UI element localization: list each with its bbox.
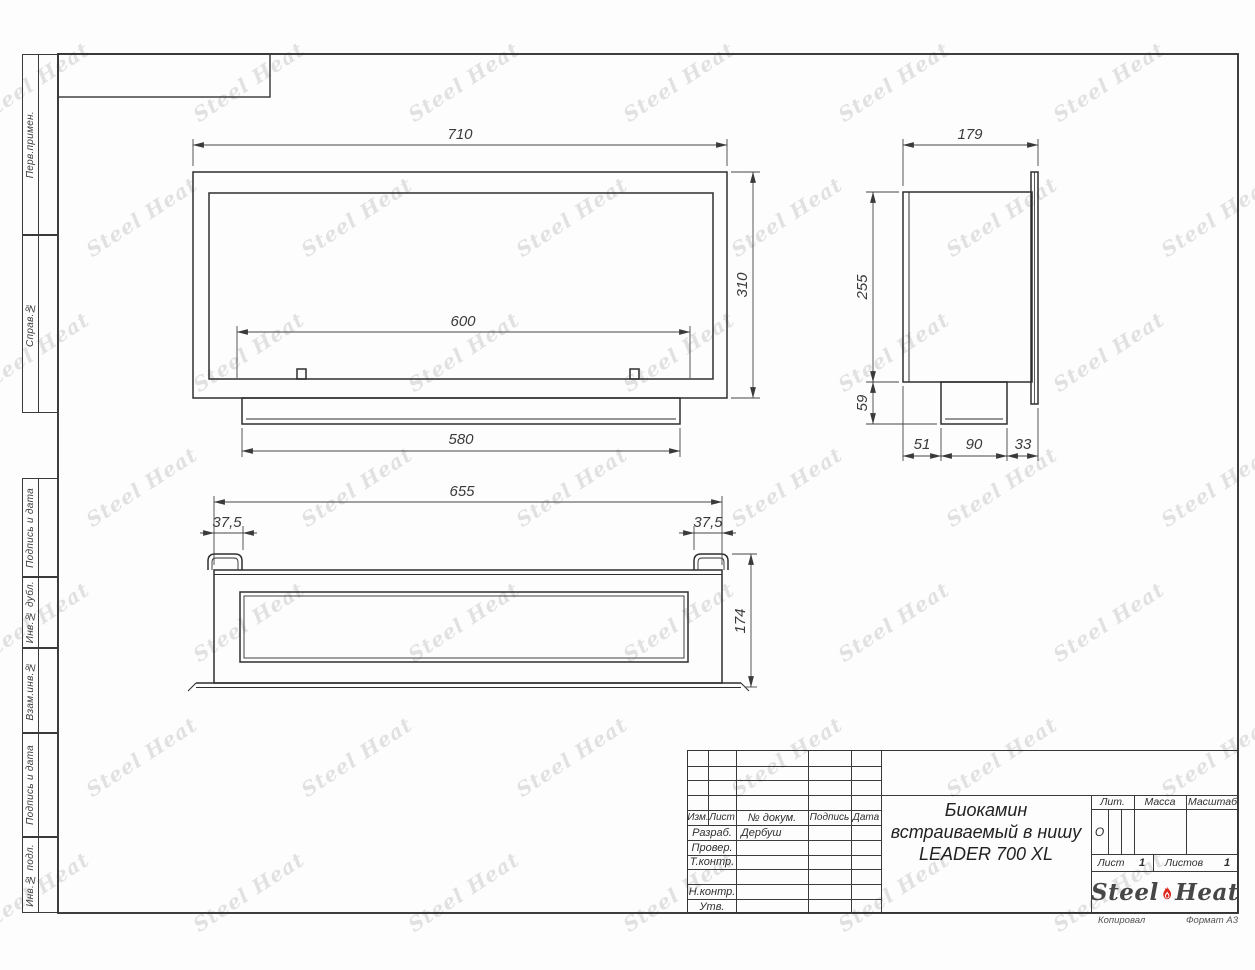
- title-block: Изм. Лист № докум. Подпись Дата Разраб. …: [687, 750, 1238, 913]
- dim-plan-width: 655: [449, 483, 475, 500]
- steelheat-logo: Steel Heat: [1091, 871, 1239, 914]
- front-view: [193, 172, 727, 424]
- col-izm: Изм.: [688, 810, 708, 825]
- row-utv-label: Утв.: [688, 899, 736, 914]
- margin-label: Перв.примен.: [25, 111, 36, 178]
- front-outer-body: [193, 172, 727, 398]
- front-view-dims: [193, 139, 760, 457]
- dim-side-51: 51: [914, 436, 931, 453]
- col-list: Лист: [708, 810, 736, 825]
- logo-steel-text: Steel: [1091, 879, 1159, 906]
- dim-front-height: 310: [734, 272, 751, 298]
- logo-heat-text: Heat: [1175, 879, 1239, 906]
- title-line-2: встраиваемый в нишу: [891, 822, 1082, 844]
- row-nkontr-label: Н.контр.: [688, 884, 736, 899]
- side-body: [903, 192, 1032, 382]
- drawing-sheet: Steel HeatSteel HeatSteel HeatSteel Heat…: [0, 0, 1255, 970]
- sheets-value: 1: [1215, 854, 1239, 871]
- dim-side-depth: 179: [957, 126, 983, 143]
- title-line-3: LEADER 700 XL: [919, 844, 1053, 866]
- margin-label: Подпись и дата: [25, 745, 36, 825]
- title-line-1: Биокамин: [945, 800, 1028, 822]
- row-prover-label: Провер.: [688, 840, 736, 855]
- margin-box-vzam-inv: Взам.инв.№: [22, 648, 58, 733]
- dim-side-foot-height: 59: [854, 394, 871, 411]
- dim-front-opening: 600: [450, 313, 476, 330]
- dim-side-height: 255: [854, 274, 871, 301]
- copied-note: Копировал: [1098, 915, 1145, 926]
- top-left-stamp-box: [58, 54, 270, 97]
- side-view-dims: [866, 139, 1038, 461]
- margin-label: Инв.№ подл.: [25, 844, 36, 907]
- lit-label: Лит.: [1091, 795, 1134, 809]
- plan-burner-opening: [240, 592, 688, 662]
- side-view: [903, 172, 1038, 424]
- plan-hook-left: [208, 554, 242, 570]
- margin-label: Подпись и дата: [25, 488, 36, 568]
- massa-label: Масса: [1134, 795, 1186, 809]
- margin-box-podpis-data-2: Подпись и дата: [22, 733, 58, 837]
- margin-box-podpis-data-1: Подпись и дата: [22, 478, 58, 577]
- lit-value: О: [1091, 809, 1108, 854]
- front-base-tray: [242, 398, 680, 424]
- scale-label: Масштаб: [1186, 795, 1239, 809]
- plan-hook-right: [694, 554, 728, 570]
- row-razrab-label: Разраб.: [688, 825, 736, 840]
- plan-body: [214, 570, 722, 683]
- margin-label: Инв.№ дубл.: [25, 581, 36, 643]
- dim-side-33: 33: [1015, 436, 1032, 453]
- row-tkontr-label: Т.контр.: [688, 855, 736, 869]
- dim-plan-depth: 174: [732, 608, 749, 633]
- format-note: Формат А3: [1186, 915, 1238, 926]
- bottom-view: [188, 554, 749, 691]
- front-glass-opening: [209, 193, 713, 379]
- col-podpis: Подпись: [808, 810, 851, 825]
- dim-plan-offset-left: 37,5: [212, 514, 242, 531]
- margin-label: Взам.инв.№: [25, 661, 36, 720]
- flame-icon: [1162, 880, 1172, 906]
- col-docnum: № докум.: [736, 810, 808, 825]
- margin-box-inv-podl: Инв.№ подл.: [22, 837, 58, 913]
- dim-front-base: 580: [448, 431, 474, 448]
- front-clip-right: [630, 369, 639, 379]
- dim-plan-offset-right: 37,5: [693, 514, 723, 531]
- dim-front-width: 710: [447, 126, 473, 143]
- sheet-label: Лист: [1091, 854, 1131, 871]
- margin-box-sprav-no: Справ.№: [22, 235, 58, 413]
- margin-label: Справ.№: [25, 302, 36, 347]
- front-clip-left: [297, 369, 306, 379]
- margin-box-inv-dubl: Инв.№ дубл.: [22, 577, 58, 648]
- side-foot: [941, 382, 1007, 424]
- document-title: Биокамин встраиваемый в нишу LEADER 700 …: [881, 795, 1091, 914]
- dim-side-90: 90: [966, 436, 983, 453]
- row-razrab-value: Дербуш: [736, 825, 808, 840]
- col-data: Дата: [851, 810, 881, 825]
- margin-box-perv-primen: Перв.примен.: [22, 54, 58, 235]
- sheets-label: Листов: [1153, 854, 1215, 871]
- sheet-value: 1: [1131, 854, 1153, 871]
